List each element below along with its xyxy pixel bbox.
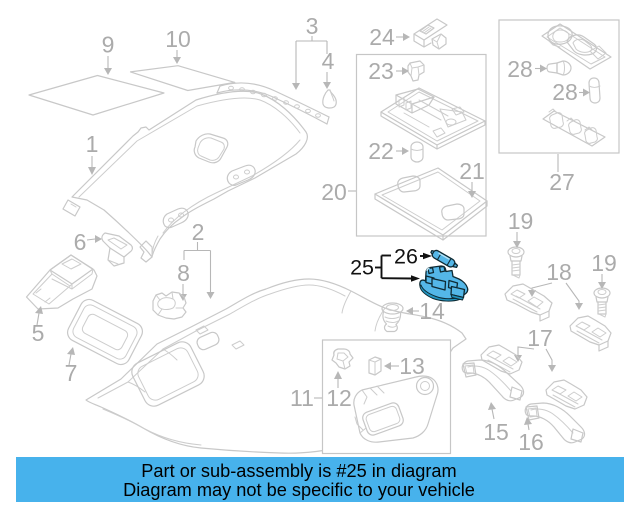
svg-text:20: 20: [321, 179, 347, 205]
svg-text:Part or sub-assembly is #25 in: Part or sub-assembly is #25 in diagram: [141, 461, 456, 481]
svg-text:3: 3: [306, 13, 319, 39]
svg-text:24: 24: [369, 24, 395, 50]
svg-text:21: 21: [459, 158, 485, 184]
svg-text:7: 7: [65, 360, 78, 386]
svg-text:15: 15: [483, 419, 509, 445]
svg-text:28: 28: [507, 56, 533, 82]
svg-text:6: 6: [74, 229, 87, 255]
svg-text:2: 2: [192, 219, 205, 245]
svg-text:11: 11: [290, 385, 314, 411]
svg-text:27: 27: [549, 169, 575, 195]
svg-text:10: 10: [165, 26, 191, 52]
svg-text:26: 26: [394, 245, 418, 269]
svg-text:17: 17: [527, 325, 553, 351]
svg-text:14: 14: [419, 298, 445, 324]
svg-text:25: 25: [350, 256, 374, 280]
svg-text:19: 19: [508, 208, 534, 234]
svg-text:12: 12: [326, 385, 352, 411]
svg-text:5: 5: [32, 320, 45, 346]
svg-text:Diagram may not be specific to: Diagram may not be specific to your vehi…: [123, 480, 475, 500]
svg-text:28: 28: [552, 79, 578, 105]
svg-text:18: 18: [546, 259, 572, 285]
svg-text:13: 13: [399, 353, 425, 379]
svg-text:8: 8: [177, 260, 190, 286]
svg-text:4: 4: [322, 48, 335, 74]
svg-text:16: 16: [518, 429, 544, 455]
svg-text:22: 22: [368, 138, 394, 164]
svg-text:23: 23: [368, 58, 394, 84]
svg-text:1: 1: [86, 131, 99, 157]
svg-text:9: 9: [102, 32, 115, 58]
svg-text:19: 19: [591, 250, 617, 276]
